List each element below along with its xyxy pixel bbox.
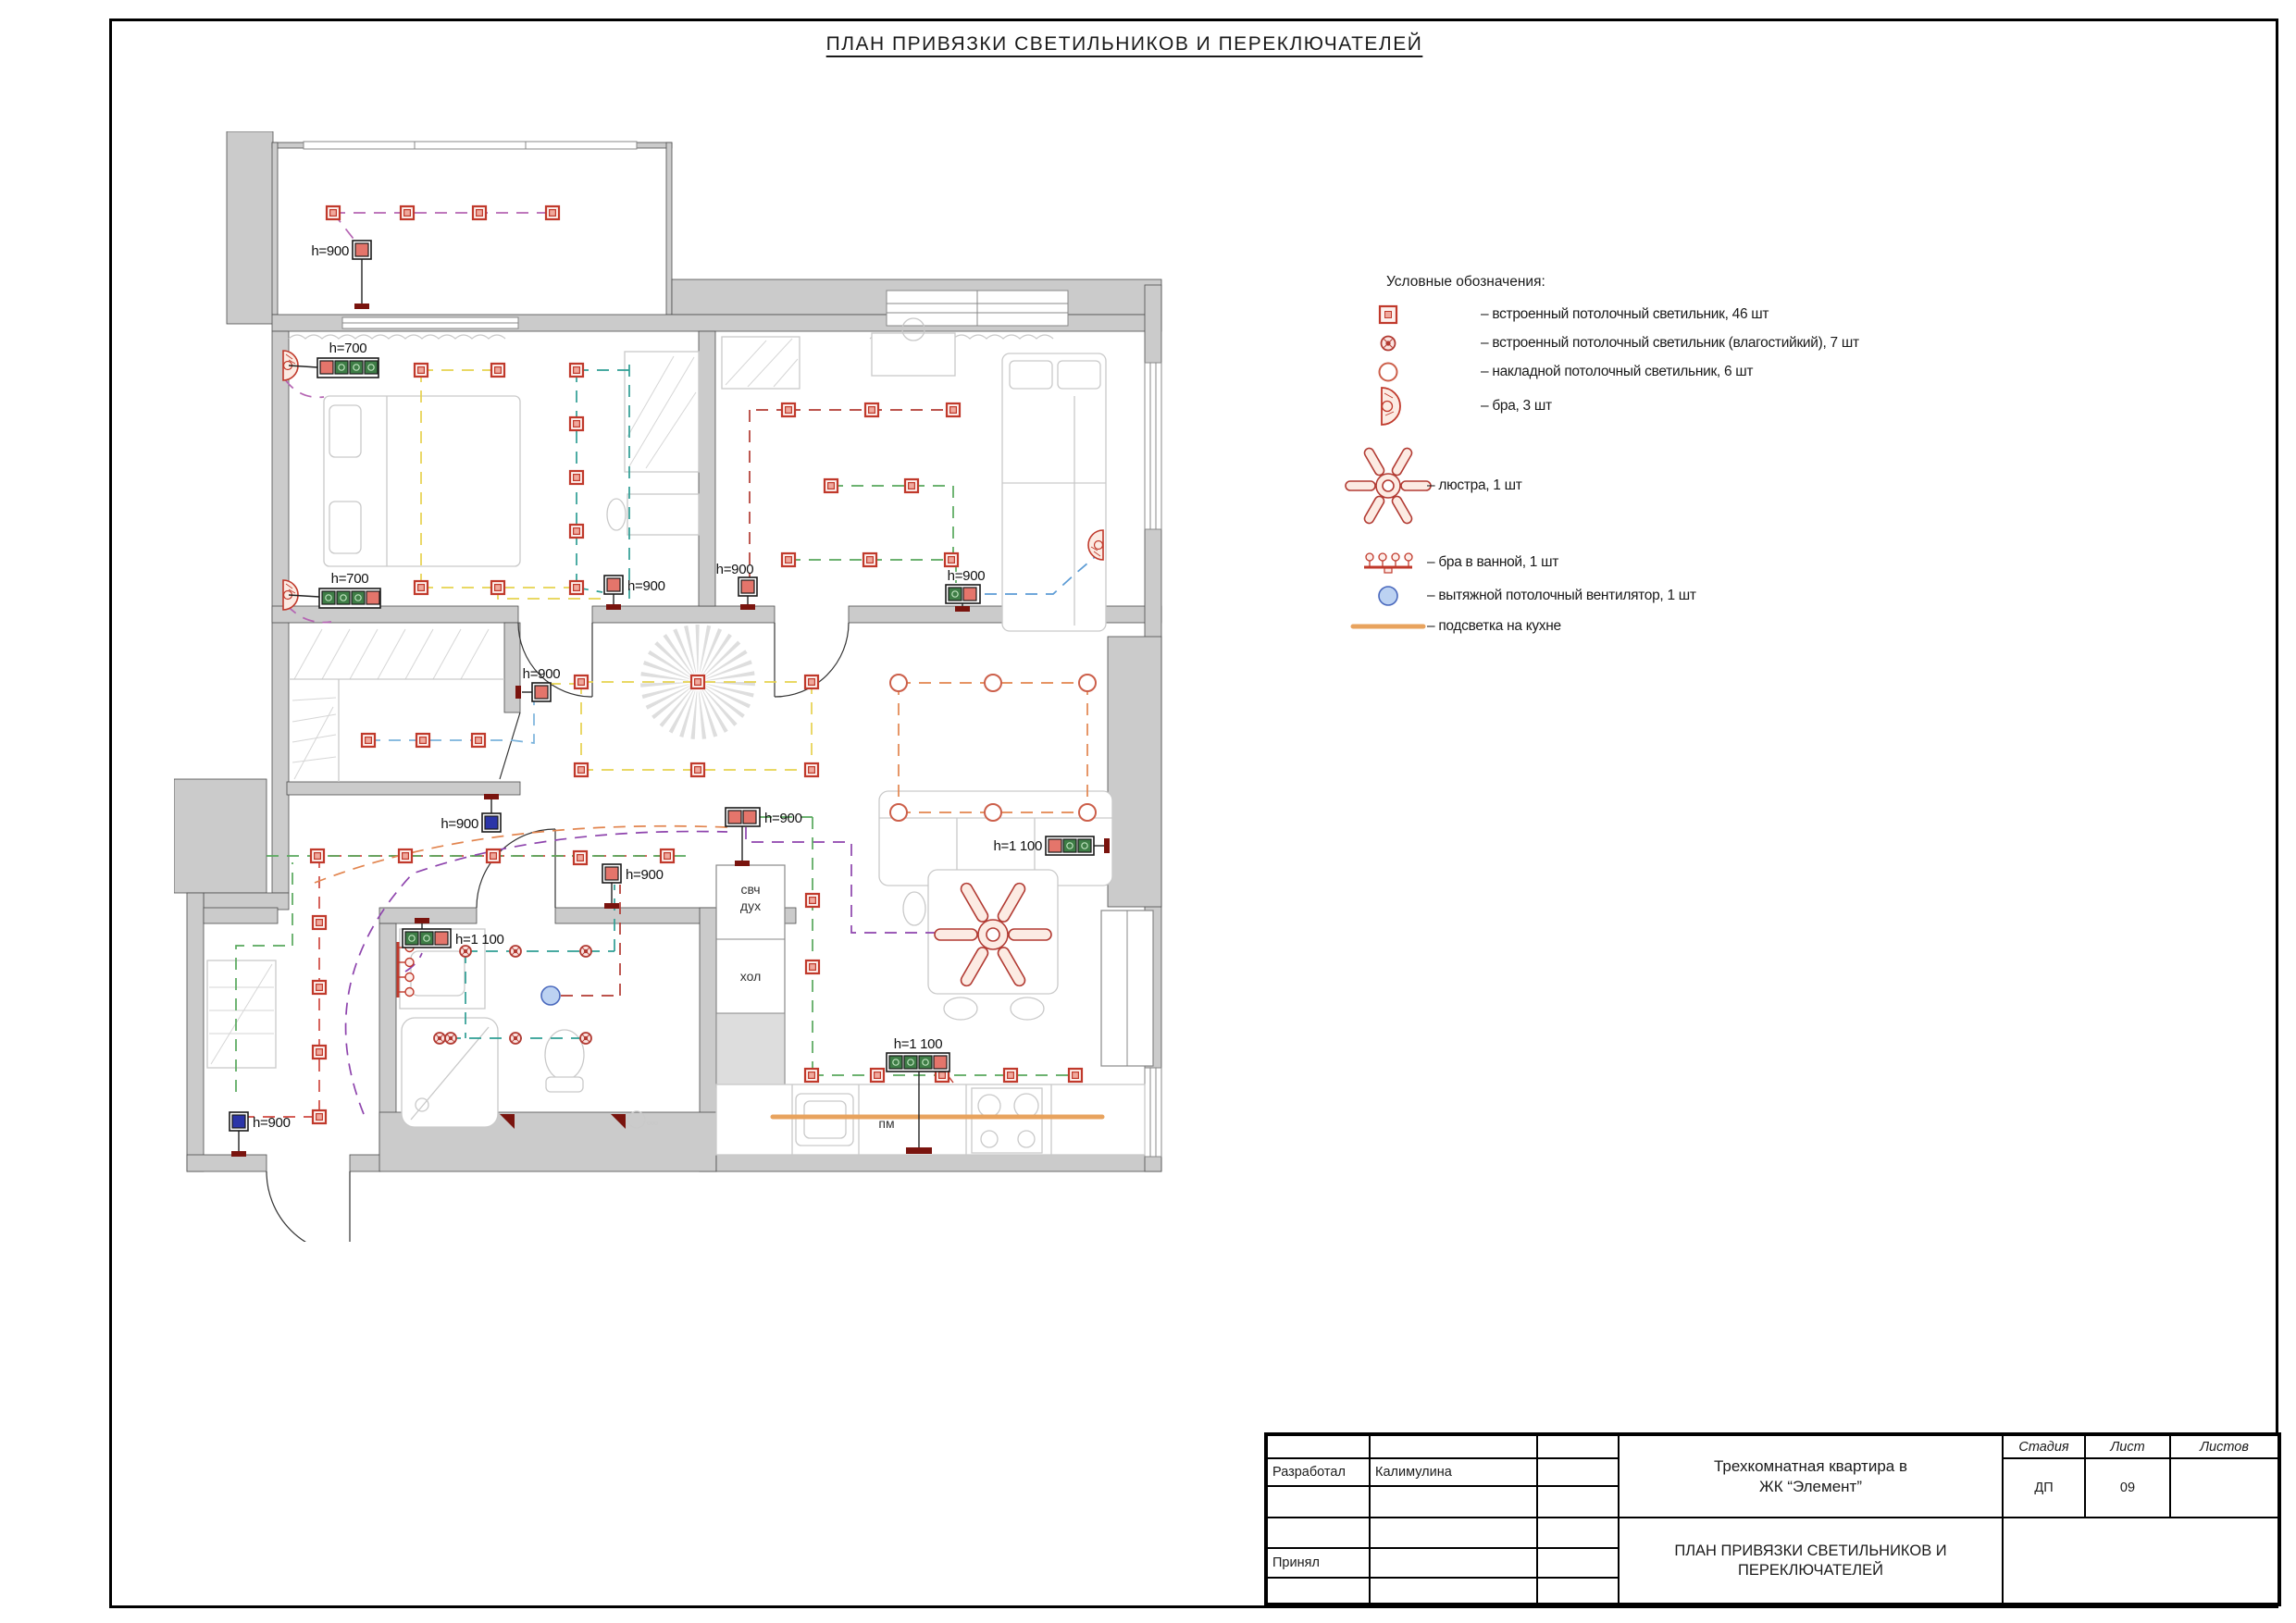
switch-height-label: h=900: [311, 243, 349, 259]
title-block-cell: [1537, 1548, 1619, 1578]
switch-height-label: h=1 100: [993, 838, 1042, 854]
title-block-cell: [1370, 1518, 1537, 1548]
title-block-cell: [1267, 1578, 1370, 1604]
stage-label: Стадия: [2003, 1435, 2085, 1458]
title-block: Разработал Калимулина Принял Трехкомнатн…: [1264, 1432, 2281, 1606]
project-name: Трехкомнатная квартира в ЖК “Элемент”: [1619, 1435, 2003, 1518]
floor-plan-lighting: h=900 h=700 h=700 h=900 h=900 h=900: [174, 131, 1173, 1242]
title-block-cell: [1370, 1548, 1537, 1578]
switch-height-label: h=900: [764, 811, 802, 826]
switch-height-label: h=900: [441, 816, 478, 832]
switch-height-label: h=900: [253, 1115, 291, 1131]
switch-height-label: h=900: [523, 666, 561, 682]
title-block-cell: [1267, 1518, 1370, 1548]
legend-item: – вытяжной потолочный вентилятор, 1 шт: [1344, 580, 2010, 612]
sheets-label: Листов: [2170, 1435, 2278, 1458]
surface-ceiling-light-icon: [1344, 361, 1433, 383]
title-block-cell: [1537, 1578, 1619, 1604]
title-block-cell: [1370, 1486, 1537, 1518]
title-block-cell: [1537, 1486, 1619, 1518]
legend-item: – бра, 3 шт: [1344, 386, 2010, 427]
title-block-cell: [2003, 1518, 2278, 1604]
cabinet-label-fridge: хол: [740, 969, 762, 984]
recessed-ceiling-light-icon: [1344, 304, 1433, 325]
title-block-cell: [1267, 1435, 1370, 1458]
switch-height-label: h=900: [716, 562, 754, 577]
legend-item: – накладной потолочный светильник, 6 шт: [1344, 357, 2010, 386]
developed-value: Калимулина: [1370, 1458, 1537, 1486]
recessed-ceiling-light-wet-icon: [1344, 333, 1433, 353]
sheet-value: 09: [2085, 1458, 2170, 1518]
exhaust-fan-icon: [541, 986, 560, 1005]
legend-item: – люстра, 1 шт: [1344, 427, 2010, 545]
sheet-name: ПЛАН ПРИВЯЗКИ СВЕТИЛЬНИКОВ И ПЕРЕКЛЮЧАТЕ…: [1619, 1518, 2003, 1604]
stage-value: ДП: [2003, 1458, 2085, 1518]
developed-label: Разработал: [1267, 1458, 1370, 1486]
legend-item: – подсветка на кухне: [1344, 612, 2010, 641]
title-block-cell: [1537, 1458, 1619, 1486]
switch-height-label: h=700: [329, 341, 367, 356]
cabinet-label-oven: дух: [740, 898, 761, 913]
sheet-label: Лист: [2085, 1435, 2170, 1458]
accepted-label: Принял: [1267, 1548, 1370, 1578]
switch-height-label: h=1 100: [894, 1036, 943, 1052]
sheets-value: [2170, 1458, 2278, 1518]
switch-height-label: h=900: [626, 867, 664, 883]
switch-height-label: h=900: [948, 568, 986, 584]
legend-item: – встроенный потолочный светильник, 46 ш…: [1344, 300, 2010, 328]
kitchen-led-strip-icon: [1344, 622, 1433, 631]
chandelier-icon: [1344, 435, 1433, 537]
legend-item: – встроенный потолочный светильник (влаг…: [1344, 328, 2010, 357]
page-title: ПЛАН ПРИВЯЗКИ СВЕТИЛЬНИКОВ И ПЕРЕКЛЮЧАТЕ…: [611, 33, 1638, 56]
legend-item: – бра в ванной, 1 шт: [1344, 545, 2010, 580]
drawing-sheet: ПЛАН ПРИВЯЗКИ СВЕТИЛЬНИКОВ И ПЕРЕКЛЮЧАТЕ…: [0, 0, 2296, 1623]
switch-height-label: h=1 100: [455, 932, 504, 948]
appliance-label-dishwasher: пм: [878, 1116, 894, 1131]
cabinet-label-microwave: свч: [740, 882, 760, 897]
legend-title: Условные обозначения:: [1386, 274, 2010, 291]
title-block-cell: [1537, 1518, 1619, 1548]
sconce-icon: [1344, 386, 1433, 427]
title-block-cell: [1370, 1578, 1537, 1604]
switch-height-label: h=700: [331, 571, 369, 587]
switch-height-label: h=900: [627, 578, 665, 594]
title-block-cell: [1370, 1435, 1537, 1458]
title-block-cell: [1537, 1435, 1619, 1458]
legend: Условные обозначения: – встроенный потол…: [1344, 274, 2010, 641]
bathroom-sconce-icon: [1344, 550, 1433, 576]
title-block-cell: [1267, 1486, 1370, 1518]
exhaust-fan-icon: [1344, 585, 1433, 607]
